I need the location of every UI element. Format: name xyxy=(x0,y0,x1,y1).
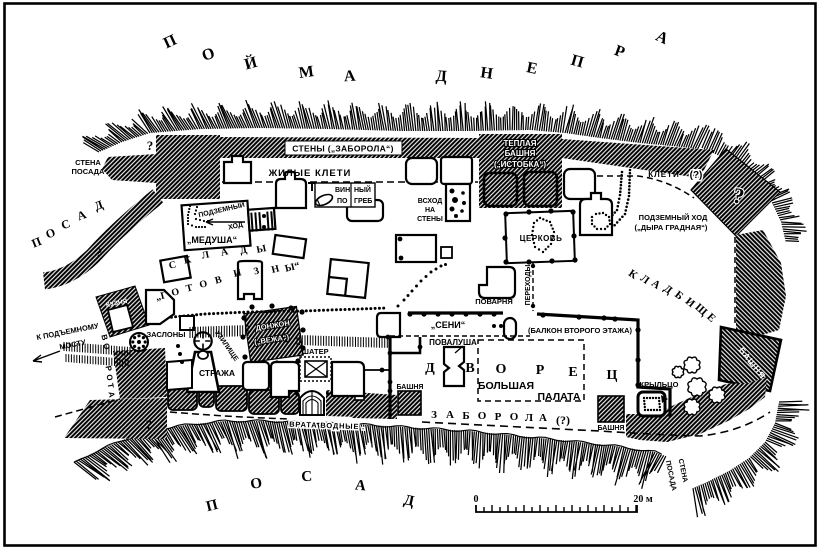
svg-text:БАШНЯ: БАШНЯ xyxy=(397,384,424,391)
svg-text:Л: Л xyxy=(525,412,534,424)
svg-text:А: А xyxy=(354,477,367,494)
svg-text:ПОВАРНЯ: ПОВАРНЯ xyxy=(475,297,513,306)
svg-text:Ц: Ц xyxy=(607,368,618,383)
svg-text:ВСХОД: ВСХОД xyxy=(418,198,442,205)
svg-text:ПЕРЕХОДЫ: ПЕРЕХОДЫ xyxy=(525,264,532,305)
svg-text:КЛЕТИ: КЛЕТИ xyxy=(648,170,679,179)
svg-text:Т: Т xyxy=(106,382,116,388)
svg-text:Д: Д xyxy=(92,197,105,213)
svg-text:М: М xyxy=(298,63,315,82)
svg-text:СТЕНА: СТЕНА xyxy=(677,458,689,483)
svg-text:Р: Р xyxy=(103,365,113,373)
svg-text:К: К xyxy=(626,267,639,281)
svg-text:О: О xyxy=(496,362,507,377)
svg-text:ЦЕРКОВЬ: ЦЕРКОВЬ xyxy=(520,234,563,243)
svg-text:ПОВАЛУША: ПОВАЛУША xyxy=(429,338,477,347)
svg-text:СТРАЖА: СТРАЖА xyxy=(199,368,235,378)
svg-text:(„ИСТОБКА“): („ИСТОБКА“) xyxy=(494,160,546,169)
svg-text:А: А xyxy=(107,391,117,398)
svg-text:О: О xyxy=(104,373,114,381)
svg-text:(БАЛКОН ВТОРОГО ЭТАЖА): (БАЛКОН ВТОРОГО ЭТАЖА) xyxy=(528,326,633,335)
svg-text:ГРЕБ: ГРЕБ xyxy=(354,198,372,205)
svg-text:СТЕНЫ: СТЕНЫ xyxy=(417,216,443,223)
svg-text:(?): (?) xyxy=(556,413,570,427)
svg-text:Е: Е xyxy=(568,365,577,380)
svg-text:О: О xyxy=(510,411,519,423)
svg-text:ШАТЕР: ШАТЕР xyxy=(301,347,328,356)
svg-text:ПОСАДА: ПОСАДА xyxy=(664,460,677,492)
svg-text:В: В xyxy=(99,333,109,341)
svg-text:(?): (?) xyxy=(690,170,703,181)
svg-text:О: О xyxy=(198,278,208,291)
svg-text:К ПОДЪЕМНОМУ: К ПОДЪЕМНОМУ xyxy=(36,321,100,342)
svg-text:БОЛЬШАЯ: БОЛЬШАЯ xyxy=(478,380,534,392)
svg-text:П: П xyxy=(161,31,180,52)
svg-text:?: ? xyxy=(147,138,154,153)
svg-text:СТЕНА: СТЕНА xyxy=(75,158,101,167)
svg-text:Б: Б xyxy=(462,410,469,422)
svg-text:А: А xyxy=(446,409,454,421)
svg-text:КРЫЛЬЦО: КРЫЛЬЦО xyxy=(640,380,679,389)
svg-text:?: ? xyxy=(96,245,103,260)
svg-text:ЖИЛЫЕ КЛЕТИ: ЖИЛЫЕ КЛЕТИ xyxy=(268,168,352,179)
svg-text:Ы: Ы xyxy=(256,243,268,256)
svg-text:К: К xyxy=(183,254,193,266)
svg-text:ПО: ПО xyxy=(337,198,348,205)
svg-text:А: А xyxy=(649,277,663,291)
svg-text:О: О xyxy=(170,286,180,299)
svg-text:Т: Т xyxy=(185,282,194,294)
svg-text:20 м: 20 м xyxy=(633,494,653,505)
svg-text:Й: Й xyxy=(242,52,259,74)
svg-text:Е: Е xyxy=(704,311,718,325)
svg-text:Д: Д xyxy=(661,283,675,297)
svg-text:А: А xyxy=(539,412,547,424)
svg-text:А: А xyxy=(343,68,356,86)
svg-text:ПОДЗЕМНЫЙ ХОД: ПОДЗЕМНЫЙ ХОД xyxy=(639,213,708,222)
svg-text:?: ? xyxy=(146,417,153,432)
svg-text:Л: Л xyxy=(201,249,211,261)
svg-text:П: П xyxy=(569,52,586,72)
svg-text:Д: Д xyxy=(425,361,435,376)
svg-text:Р: Р xyxy=(495,411,502,423)
svg-text:Р: Р xyxy=(612,42,627,61)
svg-text:ТЕПЛАЯ: ТЕПЛАЯ xyxy=(503,139,536,148)
svg-text:(„ДЫРА ГРАДНАЯ“): („ДЫРА ГРАДНАЯ“) xyxy=(635,223,708,232)
svg-text:П: П xyxy=(30,234,45,251)
svg-text:„МЕДУША“: „МЕДУША“ xyxy=(187,235,237,245)
svg-text:Б: Б xyxy=(672,289,685,303)
svg-text:О: О xyxy=(44,225,58,241)
svg-text:БАШНЯ: БАШНЯ xyxy=(505,149,536,158)
svg-text:НА: НА xyxy=(425,207,435,214)
svg-text:А: А xyxy=(75,207,88,223)
svg-text:О: О xyxy=(478,410,487,422)
svg-text:ЗАСЛОНЫ: ЗАСЛОНЫ xyxy=(146,330,185,339)
svg-text:В: В xyxy=(214,274,223,286)
svg-text:Н: Н xyxy=(479,64,494,83)
svg-text:Ы“: Ы“ xyxy=(284,260,301,274)
svg-text:Е: Е xyxy=(525,59,539,78)
svg-text:ВРАТА ВОДНЫЕ .: ВРАТА ВОДНЫЕ . xyxy=(289,420,365,432)
svg-text:СТЕНЫ („ЗАБОРОЛА“): СТЕНЫ („ЗАБОРОЛА“) xyxy=(292,144,393,154)
svg-text:Д: Д xyxy=(435,68,447,86)
svg-text:ВИН: ВИН xyxy=(335,187,350,194)
svg-text:„СЕНИ“: „СЕНИ“ xyxy=(431,320,465,330)
svg-text:ПАЛАТА: ПАЛАТА xyxy=(537,391,580,403)
svg-text:О: О xyxy=(101,342,111,350)
svg-text:Р: Р xyxy=(536,363,545,378)
svg-text:С: С xyxy=(301,469,313,486)
svg-text:Н: Н xyxy=(270,263,280,276)
svg-text:УЗИЛИЩЕ: УЗИЛИЩЕ xyxy=(213,330,239,363)
svg-text:ПОСАДА: ПОСАДА xyxy=(72,167,105,176)
svg-text:О: О xyxy=(249,475,263,493)
svg-text:НЫЙ: НЫЙ xyxy=(354,185,371,194)
svg-text:П: П xyxy=(204,497,220,515)
svg-text:0: 0 xyxy=(474,494,479,505)
svg-text:В: В xyxy=(465,361,474,376)
svg-text:О: О xyxy=(200,45,218,65)
svg-text:С: С xyxy=(59,216,72,232)
svg-text:З: З xyxy=(431,409,437,421)
svg-text:А: А xyxy=(653,28,671,48)
svg-text:Д: Д xyxy=(402,492,416,510)
